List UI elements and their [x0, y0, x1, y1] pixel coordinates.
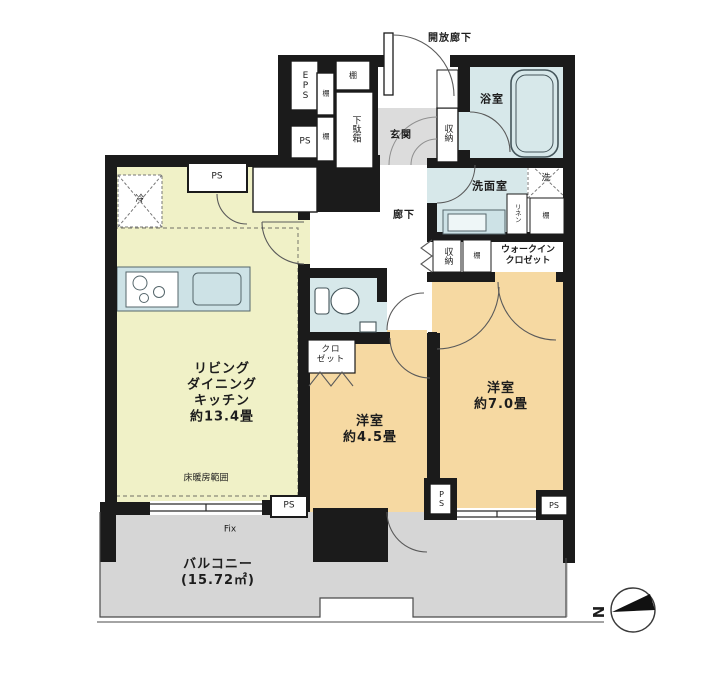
toilet-tank [315, 288, 329, 314]
threshold [427, 165, 437, 204]
shelf-label-top: 棚 [349, 71, 357, 81]
ps-label-kitchen: PS [211, 172, 222, 183]
ldk-name-line1: リビング [187, 361, 257, 377]
threshold [298, 218, 310, 264]
fix-window [150, 501, 262, 515]
bedroom-70-window [457, 508, 536, 520]
floor-plan: 開放廊下 EPS PS 棚 棚 棚 下駄箱 玄関 収納 浴室 洗面室 洗 リネン… [0, 0, 725, 681]
toilet-bowl [331, 288, 359, 314]
ps-label-bottom-mid: PS [437, 490, 445, 508]
shoe-cabinet-label: 下駄箱 [351, 116, 360, 143]
entrance-door-leaf [384, 33, 393, 95]
ps-label-entrance: PS [299, 137, 310, 148]
ps-label-bottom-right: PS [549, 501, 559, 511]
entrance-label: 玄関 [390, 130, 412, 142]
wic-label-line1: ウォークイン [501, 245, 555, 256]
ldk-label: リビング ダイニング キッチン 約13.4畳 [187, 361, 257, 424]
bathroom-label: 浴室 [480, 92, 504, 105]
floor-heating-label: 床暖房範囲 [183, 474, 228, 485]
shelf-label-left-2: 棚 [323, 133, 330, 142]
fix-window-label: Fix [224, 525, 236, 536]
bedroom-70-size: 約7.0畳 [474, 397, 528, 413]
north-label: N [590, 606, 608, 619]
hallway-label: 廊下 [393, 210, 415, 222]
threshold [389, 333, 429, 344]
vanity-sink [448, 214, 486, 231]
entrance-storage-label: 収納 [443, 124, 452, 142]
shelf-label-left-1: 棚 [323, 90, 330, 99]
washer-label: 洗 [541, 174, 550, 185]
entrance-alcove-box [437, 70, 458, 108]
balcony-label: バルコニー (15.72㎡) [181, 557, 255, 589]
bedroom-45-size: 約4.5畳 [343, 430, 397, 446]
walk-in-closet-label: ウォークイン クロゼット [501, 245, 555, 267]
threshold [458, 112, 470, 152]
ldk-name-line2: ダイニング [187, 377, 257, 393]
balcony-name: バルコニー [181, 557, 255, 573]
washroom-label: 洗面室 [472, 179, 508, 192]
balcony-size: (15.72㎡) [181, 573, 255, 589]
bedroom-70-name: 洋室 [474, 381, 528, 397]
ps-label-balcony-left: PS [283, 501, 294, 512]
fridge-label: 冷 [135, 195, 144, 206]
toilet-door-arc [387, 293, 424, 330]
floorplan-canvas [0, 0, 725, 681]
bathroom-floor [465, 62, 565, 162]
kitchen-counter [117, 267, 250, 311]
toilet-hand-sink [360, 322, 376, 332]
closet-label-line1: クロ [317, 345, 346, 355]
bedroom-70-label: 洋室 約7.0畳 [474, 381, 528, 413]
washroom-shelf-label: 棚 [543, 212, 550, 221]
linen-label: リネン [514, 203, 521, 223]
ldk-size: 約13.4畳 [187, 409, 257, 425]
utility-box [253, 167, 317, 212]
bedroom-45-label: 洋室 約4.5畳 [343, 414, 397, 446]
wic-shelf-label: 棚 [474, 252, 481, 261]
hall-storage-folding-door [421, 240, 432, 272]
wic-storage-label: 収納 [443, 247, 452, 265]
closet-label: クロ ゼット [317, 345, 346, 366]
wic-label-line2: クロゼット [501, 256, 555, 267]
bedroom-45-name: 洋室 [343, 414, 397, 430]
closet-label-line2: ゼット [317, 355, 346, 365]
threshold [377, 302, 387, 332]
open-corridor-label: 開放廊下 [428, 33, 472, 45]
ldk-name-line3: キッチン [187, 393, 257, 409]
eps-label: EPS [301, 71, 310, 101]
stove [126, 272, 178, 307]
compass [611, 588, 655, 632]
vanity-counter [443, 210, 505, 234]
threshold [495, 272, 556, 282]
